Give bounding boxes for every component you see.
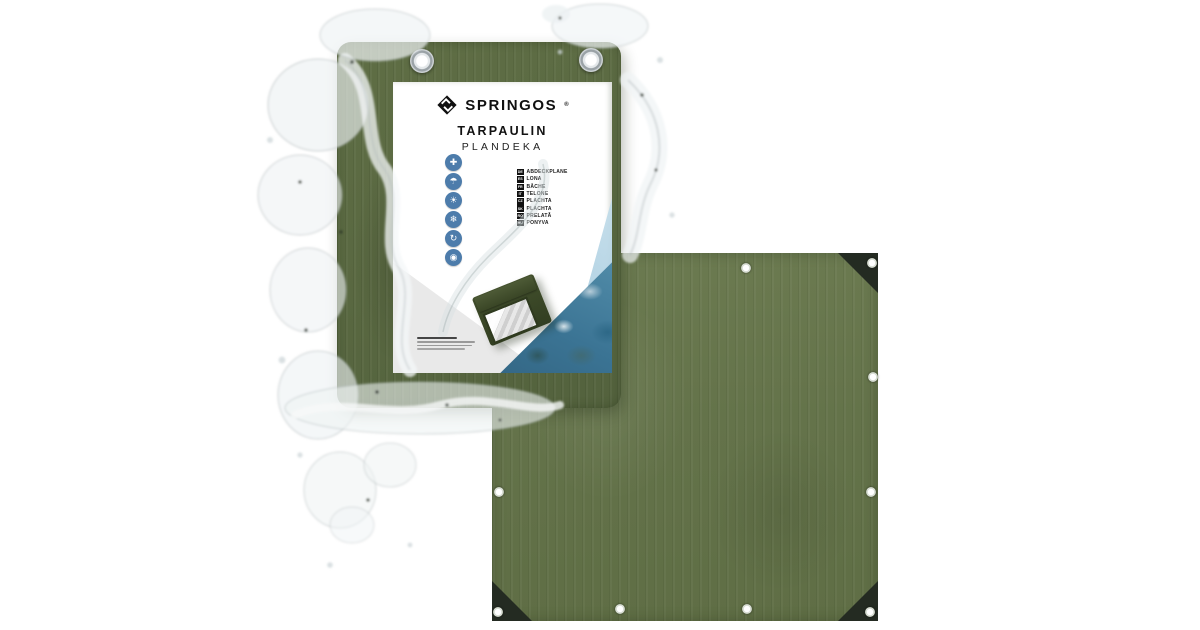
grommet	[867, 258, 877, 268]
brand-name: SPRINGOS	[465, 97, 557, 114]
language-code-badge: HU	[517, 220, 524, 227]
language-code-badge: ES	[517, 176, 524, 183]
grommet	[741, 263, 751, 273]
language-row: FR BÂCHE	[517, 184, 568, 190]
grommet	[742, 604, 752, 614]
frost-resistant-icon: ❄	[445, 211, 462, 228]
language-word: PLACHTA	[527, 198, 552, 204]
language-code-badge: IT	[517, 191, 524, 198]
language-code-badge: RO	[517, 213, 524, 220]
language-row: CZ PLACHTA	[517, 198, 568, 204]
product-subtitle: PLANDEKA	[393, 141, 612, 153]
language-row: DE ABDECKPLANE	[517, 169, 568, 175]
eyelet-icon: ◉	[445, 249, 462, 266]
language-row: RO PRELATĂ	[517, 213, 568, 219]
package-grommet-right	[579, 48, 603, 72]
package-grommet-left	[410, 49, 434, 73]
product-title: TARPAULIN	[393, 124, 612, 138]
product-label: SPRINGOS ® TARPAULIN PLANDEKA ✚ ☂ ☀ ❄ ↻ …	[393, 82, 612, 373]
language-row: HU PONYVA	[517, 220, 568, 226]
language-code-badge: SK	[517, 205, 524, 212]
manufacturer-small-print	[417, 337, 475, 350]
product-photo-scene: SPRINGOS ® TARPAULIN PLANDEKA ✚ ☂ ☀ ❄ ↻ …	[0, 0, 1200, 630]
language-code-badge: FR	[517, 184, 524, 191]
brand-logo-row: SPRINGOS ®	[393, 94, 612, 116]
grommet	[493, 607, 503, 617]
language-row: SK PLACHTA	[517, 205, 568, 211]
grommet	[615, 604, 625, 614]
language-word: PONYVA	[527, 220, 549, 226]
uv-protection-icon: ☀	[445, 192, 462, 209]
feature-icons-column: ✚ ☂ ☀ ❄ ↻ ◉	[445, 154, 462, 266]
folded-tarp-photo	[472, 274, 553, 347]
language-row: IT TELONE	[517, 191, 568, 197]
language-word: BÂCHE	[527, 184, 546, 190]
dimensions-icon: ✚	[445, 154, 462, 171]
reusable-icon: ↻	[445, 230, 462, 247]
language-word: TELONE	[527, 191, 549, 197]
springos-diamond-icon	[436, 94, 458, 116]
language-word: PLACHTA	[527, 206, 552, 212]
label-product-photo	[469, 268, 553, 352]
waterproof-icon: ☂	[445, 173, 462, 190]
grommet	[866, 487, 876, 497]
language-code-badge: DE	[517, 169, 524, 176]
grommet	[868, 372, 878, 382]
language-word: LONA	[527, 176, 542, 182]
tarpaulin-folded-package: SPRINGOS ® TARPAULIN PLANDEKA ✚ ☂ ☀ ❄ ↻ …	[337, 42, 621, 408]
language-code-badge: CZ	[517, 198, 524, 205]
grommet	[865, 607, 875, 617]
language-row: ES LONA	[517, 176, 568, 182]
language-word: PRELATĂ	[527, 213, 552, 219]
grommet	[494, 487, 504, 497]
language-list: DE ABDECKPLANE ES LONA FR BÂCHE IT TELON…	[517, 169, 568, 226]
registered-mark: ®	[564, 102, 568, 108]
language-word: ABDECKPLANE	[527, 169, 568, 175]
